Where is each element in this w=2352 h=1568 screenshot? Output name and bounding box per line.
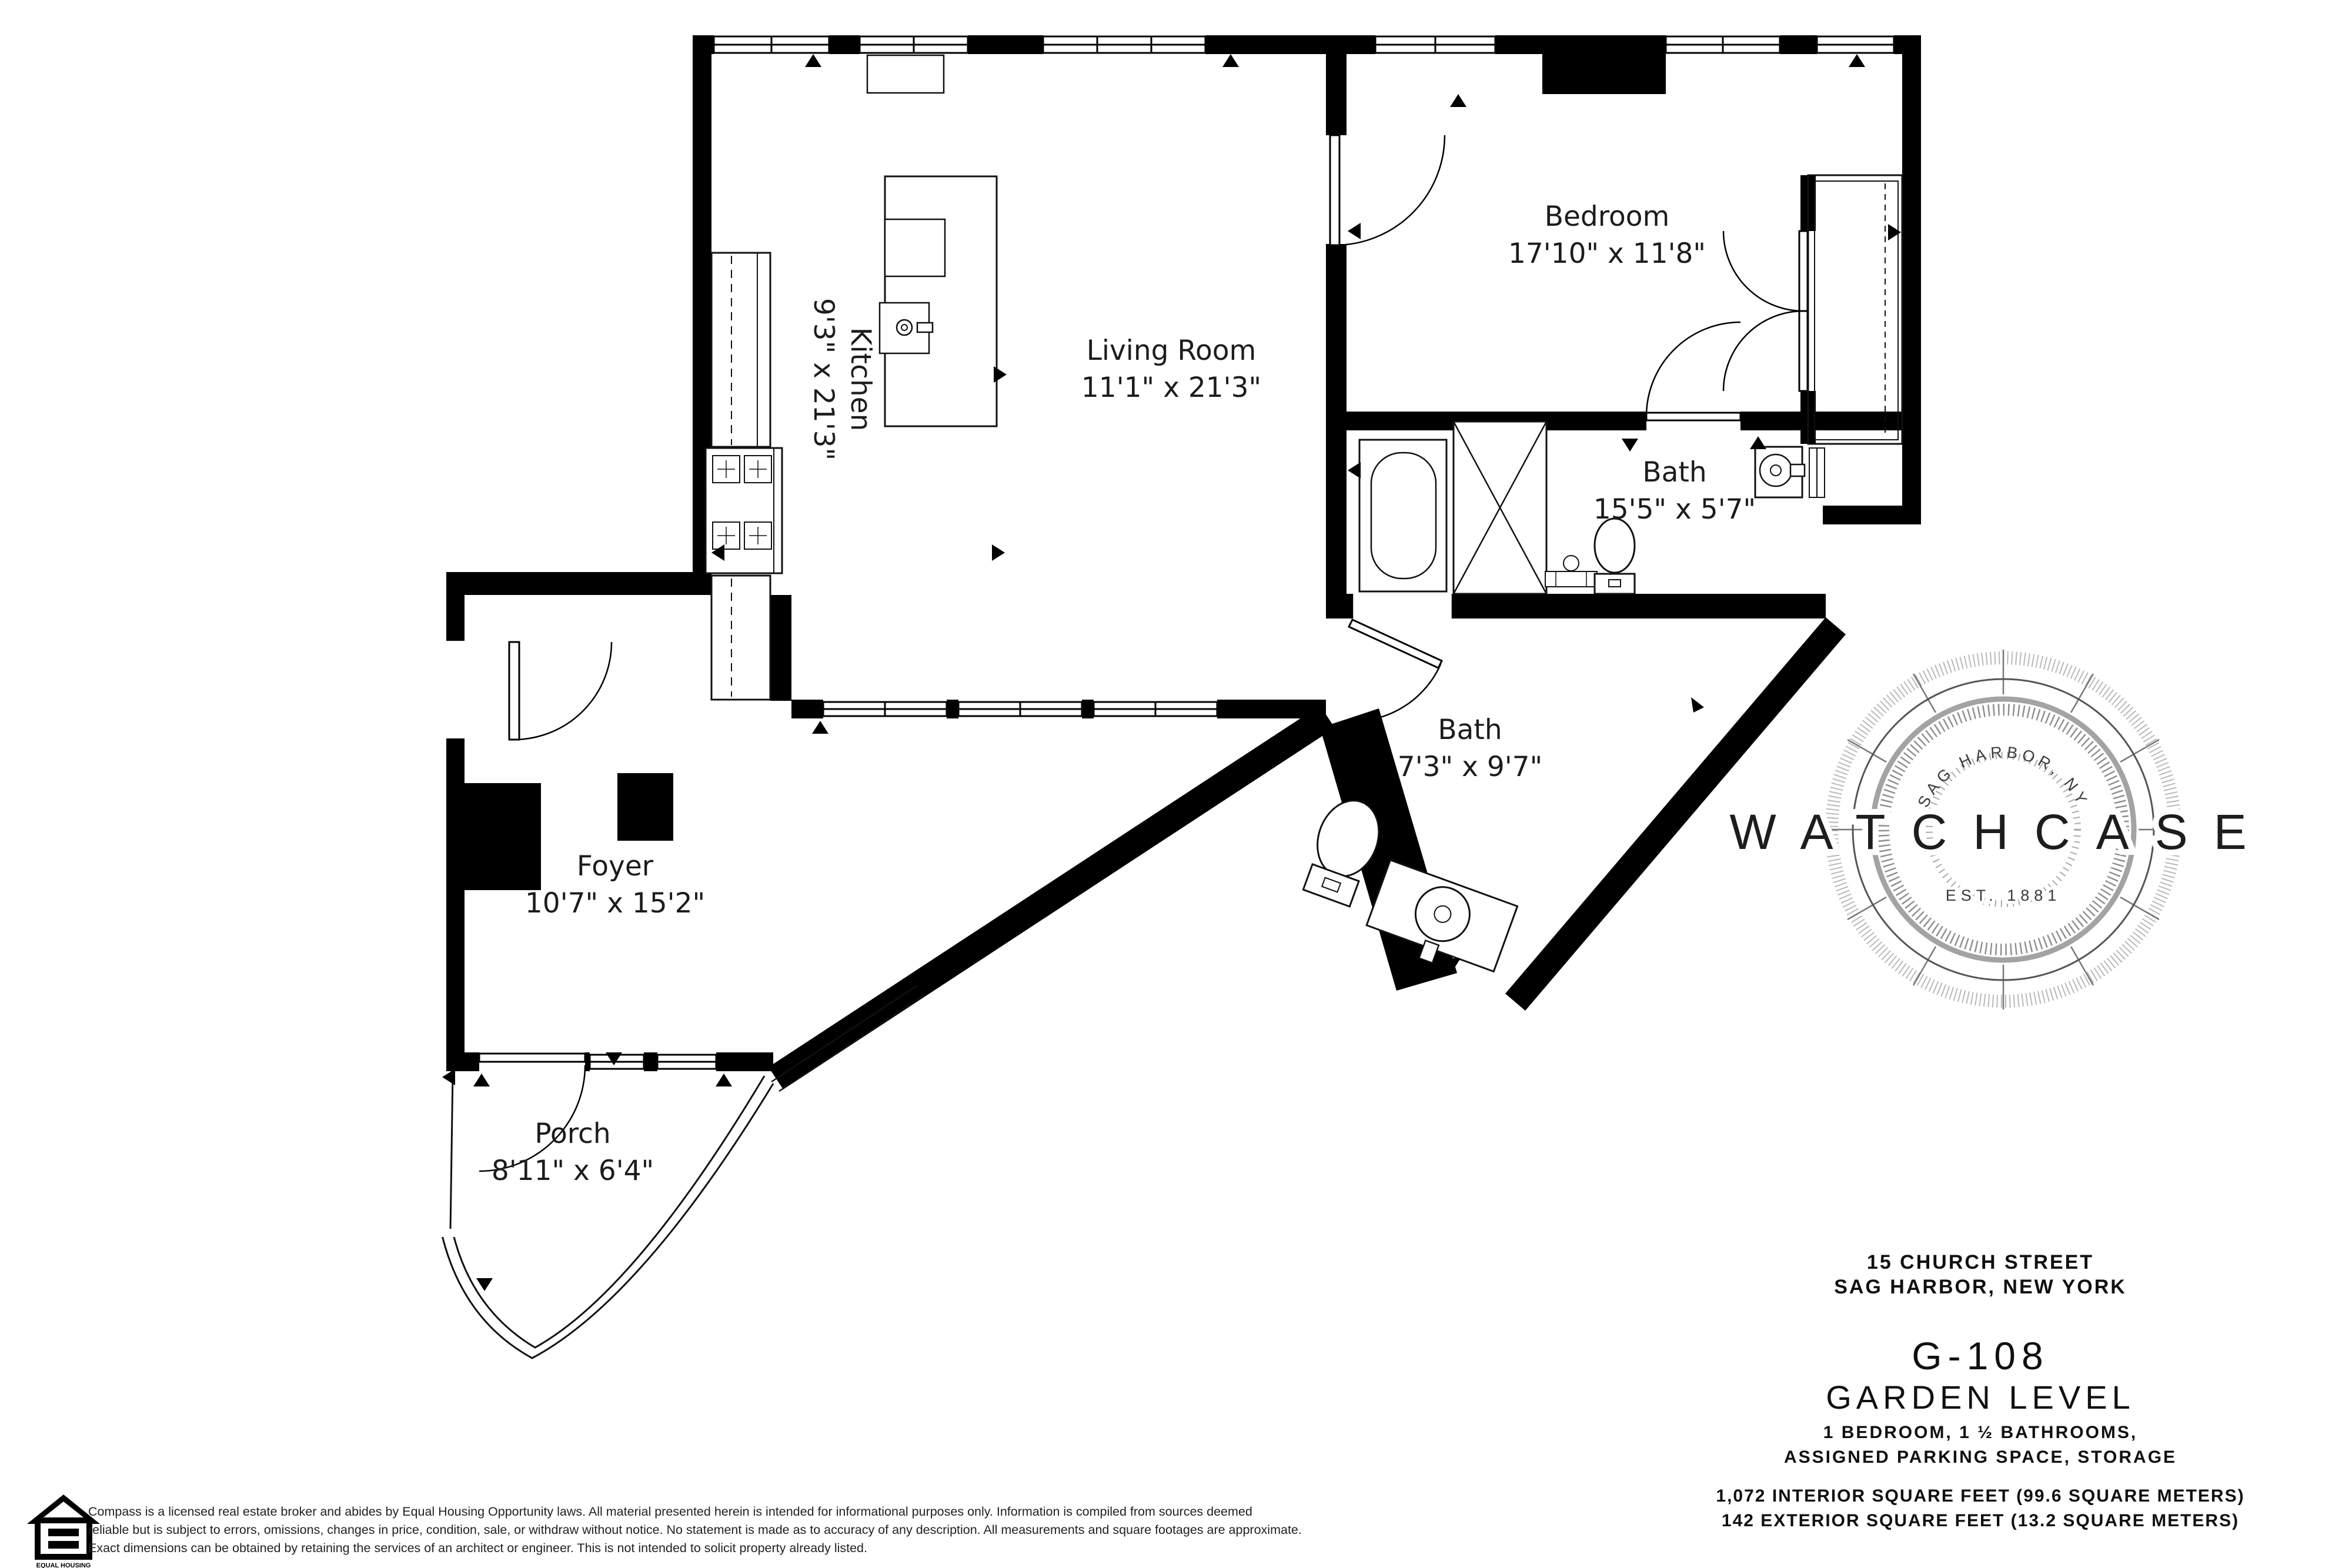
room-name: Kitchen [842,298,879,460]
svg-text:SAG HARBOR, NY: SAG HARBOR, NY [1915,743,2093,810]
room-name: Foyer [525,848,705,885]
toilet [1595,519,1635,594]
door-symbols [479,135,1808,1171]
room-dims: 15'5" x 5'7" [1593,491,1756,528]
unit-number: G-108 [1628,1333,2333,1378]
shower [1454,422,1597,594]
room-dims: 9'3" x 21'3" [805,298,842,460]
room-label-bedroom: Bedroom 17'10" x 11'8" [1508,198,1706,272]
seal-est-text: EST. 1881 [1946,887,2062,904]
interior-area: 1,072 INTERIOR SQUARE FEET (99.6 SQUARE … [1628,1486,2333,1506]
features-line-1: 1 BEDROOM, 1 ½ BATHROOMS, [1628,1423,2333,1443]
disclaimer-line-3: Exact dimensions can be obtained by reta… [88,1539,1641,1557]
address-line-2: SAG HARBOR, NEW YORK [1628,1276,2333,1299]
window-symbols [590,36,1894,1069]
island-sink [880,303,933,353]
room-name: Bath [1593,454,1756,491]
bedroom-closet [1808,175,1902,444]
room-dims: 17'10" x 11'8" [1508,235,1706,272]
room-name: Living Room [1081,332,1261,369]
vanity-sink [1755,447,1825,497]
room-name: Bath [1398,711,1542,748]
watchcase-seal: SAG HARBOR, NY EST. 1881 WATCHCASE [1729,650,2272,1009]
room-label-living-room: Living Room 11'1" x 21'3" [1081,332,1261,406]
room-label-porch: Porch 8'11" x 6'4" [492,1115,654,1189]
address-line-1: 15 CHURCH STREET [1628,1251,2333,1274]
room-dims: 11'1" x 21'3" [1081,369,1261,406]
room-label-bath-main: Bath 15'5" x 5'7" [1593,454,1756,528]
floorplan-page: SAG HARBOR, NY EST. 1881 WATCHCASE EQUAL… [0,0,2352,1568]
disclaimer-line-1: Compass is a licensed real estate broker… [88,1503,1641,1521]
level-name: GARDEN LEVEL [1628,1378,2333,1416]
room-label-kitchen: Kitchen 9'3" x 21'3" [805,298,879,460]
walls-layer [446,35,1921,1089]
disclaimer-line-2: reliable but is subject to errors, omiss… [88,1521,1641,1539]
seal-arc-text: SAG HARBOR, NY [1915,743,2093,810]
room-dims: 7'3" x 9'7" [1398,748,1542,785]
room-label-foyer: Foyer 10'7" x 15'2" [525,848,705,922]
bathtub [1359,440,1446,591]
floor-plan-svg: SAG HARBOR, NY EST. 1881 WATCHCASE EQUAL… [0,0,2352,1568]
exterior-area: 142 EXTERIOR SQUARE FEET (13.2 SQUARE ME… [1628,1511,2333,1531]
legal-disclaimer: Compass is a licensed real estate broker… [88,1503,1641,1557]
room-dims: 8'11" x 6'4" [492,1152,654,1189]
brand-wordmark: WATCHCASE [1729,804,2272,860]
room-label-bath-powder: Bath 7'3" x 9'7" [1398,711,1542,785]
room-name: Porch [492,1115,654,1152]
room-dims: 10'7" x 15'2" [525,885,705,922]
eho-text-1: EQUAL HOUSING [36,1562,91,1568]
features-line-2: ASSIGNED PARKING SPACE, STORAGE [1628,1447,2333,1467]
room-name: Bedroom [1508,198,1706,235]
